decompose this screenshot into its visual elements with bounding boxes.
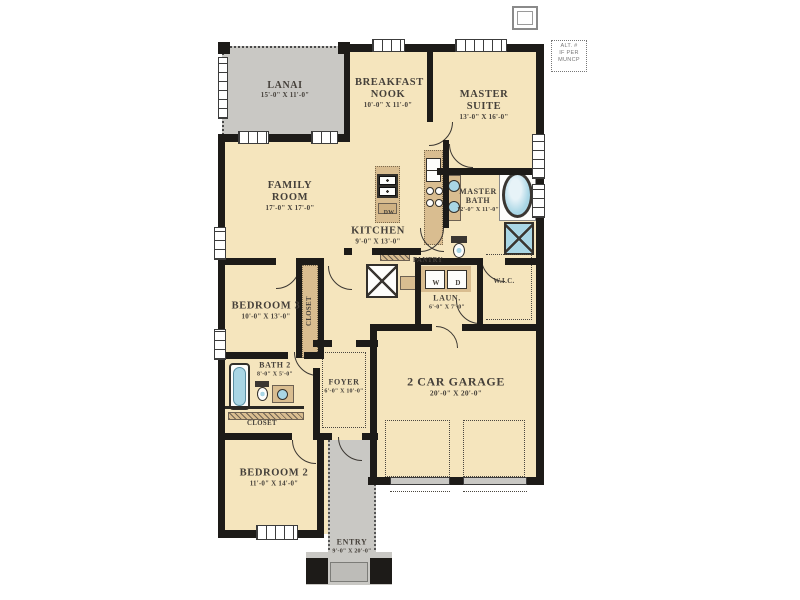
room-label-bedroom2: BEDROOM 2 11'-0" X 14'-0" bbox=[240, 468, 309, 489]
wall-segment bbox=[218, 352, 288, 359]
wall-segment bbox=[313, 340, 332, 347]
plan-key-square-icon bbox=[512, 6, 538, 30]
bathtub-icon bbox=[502, 172, 533, 218]
room-label-family-room: FAMILY ROOM 17'-0" X 17'-0" bbox=[262, 180, 318, 212]
cooktop-burner-icon bbox=[435, 187, 443, 195]
entry-step bbox=[330, 562, 368, 582]
entry-pillar bbox=[370, 558, 392, 584]
room-label-breakfast-nook: BREAKFAST NOOK 10'-0" X 11'-0" bbox=[355, 77, 421, 109]
wall-segment bbox=[450, 477, 463, 485]
dishwasher-icon: DW bbox=[378, 203, 397, 214]
wall-segment bbox=[536, 44, 544, 485]
cooktop-burner-icon bbox=[426, 199, 434, 207]
room-label-bedroom3: BEDROOM 3 10'-0" X 13'-0" bbox=[232, 301, 301, 322]
wall-segment bbox=[368, 477, 390, 485]
garage-apron bbox=[390, 487, 450, 492]
entry-pillar bbox=[306, 558, 328, 584]
wall-segment bbox=[370, 324, 377, 485]
toilet-bowl-icon bbox=[453, 243, 465, 258]
toilet-icon bbox=[451, 236, 467, 243]
room-label-master-suite: MASTER SUITE 13'-0" X 16'-0" bbox=[455, 89, 513, 121]
wall-segment bbox=[317, 433, 324, 538]
room-label-lanai: LANAI 15'-0" X 11'-0" bbox=[261, 80, 310, 100]
window bbox=[214, 329, 226, 360]
window bbox=[214, 227, 226, 260]
wall-segment bbox=[427, 44, 433, 122]
wall-segment bbox=[437, 168, 536, 175]
lanai-screen bbox=[218, 57, 228, 119]
sink-icon bbox=[277, 389, 288, 400]
wall-segment bbox=[218, 433, 292, 440]
cooktop-burner-icon bbox=[435, 199, 443, 207]
room-label-garage: 2 CAR GARAGE 20'-0" X 20'-0" bbox=[407, 376, 505, 399]
wall-segment bbox=[374, 324, 432, 331]
washer-icon: W bbox=[425, 270, 445, 289]
alt-note: ALT. # IF PER MUNCP bbox=[551, 40, 587, 72]
room-label-master-bath: MASTER BATH 12'-0" X 11'-0" bbox=[455, 188, 501, 214]
room-label-kitchen: KITCHEN 9'-0" X 13'-0" bbox=[351, 226, 405, 247]
room-label-entry: ENTRY 9'-0" X 20'-0" bbox=[332, 539, 371, 556]
kitchen-sink-icon bbox=[377, 174, 398, 198]
room-label-bath2: BATH 2 8'-0" X 5'-0" bbox=[257, 362, 293, 379]
wall-segment bbox=[505, 258, 536, 265]
wall-segment bbox=[527, 477, 544, 485]
garage-door bbox=[463, 477, 527, 485]
wall-segment bbox=[362, 433, 378, 440]
linen-closet-icon bbox=[366, 264, 398, 298]
wall-segment bbox=[225, 406, 304, 409]
lanai-post bbox=[218, 42, 230, 54]
wall-segment bbox=[313, 368, 320, 440]
wall-segment bbox=[443, 140, 449, 228]
dryer-icon: D bbox=[447, 270, 467, 289]
bathtub-icon bbox=[229, 363, 250, 410]
window bbox=[311, 131, 338, 144]
wall-segment bbox=[324, 433, 332, 440]
window bbox=[455, 39, 507, 52]
wall-segment bbox=[356, 340, 378, 347]
wall-segment bbox=[462, 324, 540, 331]
shower-icon bbox=[504, 222, 534, 255]
cooktop-burner-icon bbox=[426, 187, 434, 195]
window bbox=[372, 39, 405, 52]
room-label-bedroom3-closet: CLOSET bbox=[306, 296, 314, 326]
wall-segment bbox=[218, 258, 276, 265]
parking-space bbox=[463, 420, 525, 477]
room-label-pantry: PANTRY bbox=[413, 257, 443, 265]
room-label-hall-closet: CLOSET bbox=[247, 420, 277, 428]
window bbox=[238, 131, 269, 144]
wall-segment bbox=[344, 44, 350, 142]
room-label-laundry: LAUN. 6'-0" X 7'-0" bbox=[429, 295, 465, 312]
room-label-foyer: FOYER 6'-0" X 10'-0" bbox=[324, 379, 363, 396]
window bbox=[256, 525, 298, 540]
parking-space bbox=[385, 420, 450, 477]
wall-segment bbox=[415, 258, 421, 330]
garage-apron bbox=[463, 487, 527, 492]
hall-closet-shelf bbox=[228, 412, 304, 420]
window bbox=[532, 134, 545, 179]
wall-segment bbox=[304, 352, 324, 359]
wall-segment bbox=[477, 258, 483, 330]
window bbox=[532, 184, 545, 218]
garage-door bbox=[390, 477, 450, 485]
wall-segment bbox=[344, 248, 352, 255]
wall-segment bbox=[372, 248, 421, 255]
floor-plan: DW W D ALT. # IF PER MUNCP bbox=[0, 0, 800, 600]
room-label-wic: W.I.C. bbox=[493, 278, 514, 286]
toilet-bowl-icon bbox=[257, 387, 268, 401]
